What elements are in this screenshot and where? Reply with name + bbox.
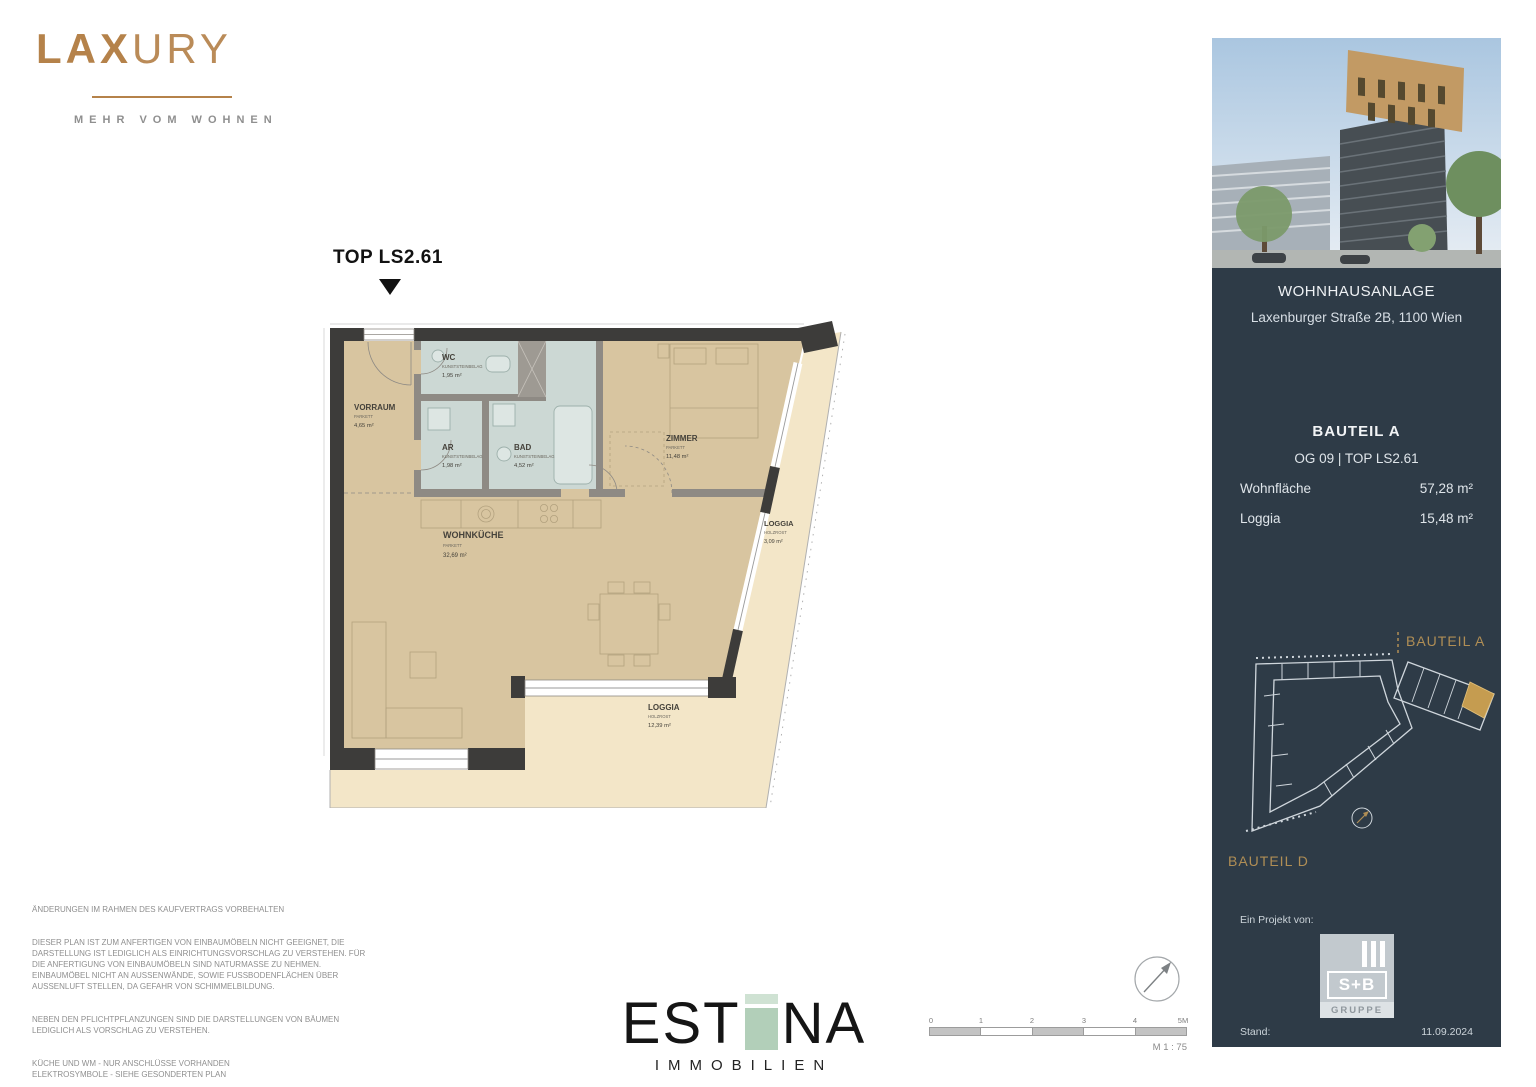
svg-text:11,48 m²: 11,48 m²	[666, 454, 689, 460]
window-south	[375, 749, 468, 769]
area-label: Loggia	[1240, 511, 1281, 526]
svg-text:3,09 m²: 3,09 m²	[764, 539, 783, 545]
scale-tick: 3	[1082, 1016, 1086, 1025]
svg-text:PARKETT: PARKETT	[354, 414, 373, 419]
area-row-loggia: Loggia 15,48 m²	[1240, 511, 1473, 526]
sidebar: WOHNHAUSANLAGE Laxenburger Straße 2B, 11…	[1212, 38, 1501, 1047]
sb-logo-gruppe: GRUPPE	[1320, 1002, 1394, 1018]
sb-gruppe-logo: S+B GRUPPE	[1320, 934, 1394, 1018]
project-by-label: Ein Projekt von:	[1240, 914, 1314, 926]
svg-text:PARKETT: PARKETT	[443, 543, 462, 548]
scale-tick: 0	[929, 1016, 933, 1025]
svg-text:ZIMMER: ZIMMER	[666, 434, 698, 443]
scale-bar-segments	[929, 1027, 1187, 1036]
estina-word-right: NA	[782, 997, 867, 1050]
estina-word-left: EST	[622, 997, 741, 1050]
highlighted-unit	[1462, 682, 1494, 718]
laxury-wordmark-bold: LAX	[36, 25, 132, 72]
svg-text:KUNSTSTEINBELAG: KUNSTSTEINBELAG	[442, 454, 483, 459]
entrance	[364, 329, 414, 340]
svg-text:4,65 m²: 4,65 m²	[354, 423, 374, 429]
estina-wordmark: EST NA	[606, 994, 882, 1050]
disclaimer-p1: ÄNDERUNGEN IM RAHMEN DES KAUFVERTRAGS VO…	[32, 904, 502, 915]
disclaimer-p4: KÜCHE UND WM - NUR ANSCHLÜSSE VORHANDEN …	[32, 1058, 502, 1080]
laxury-wordmark: LAXURY	[36, 28, 296, 70]
site-plan: BAUTEIL A BAUTEIL D	[1212, 606, 1501, 896]
unit-pointer-icon	[379, 279, 401, 295]
scale-tick: 1	[979, 1016, 983, 1025]
scale-tick: 2	[1030, 1016, 1034, 1025]
svg-text:HOLZROST: HOLZROST	[648, 714, 671, 719]
bauteil-heading: BAUTEIL A	[1212, 423, 1501, 440]
svg-text:WC: WC	[442, 353, 456, 362]
logo-divider	[92, 96, 232, 98]
estina-i-icon	[745, 994, 778, 1050]
svg-text:HOLZROST: HOLZROST	[764, 530, 787, 535]
siteplan-compass-icon	[1352, 808, 1372, 828]
svg-text:PARKETT: PARKETT	[666, 445, 685, 450]
unit-line: OG 09 | TOP LS2.61	[1212, 451, 1501, 466]
area-label: Wohnfläche	[1240, 481, 1311, 496]
logo-tagline: MEHR VOM WOHNEN	[74, 114, 278, 126]
siteplan-label-a: BAUTEIL A	[1406, 633, 1485, 649]
brochure-page: LAXURY MEHR VOM WOHNEN TOP LS2.61	[0, 0, 1536, 1087]
svg-text:KUNSTSTEINBELAG: KUNSTSTEINBELAG	[514, 454, 555, 459]
area-row-wohnflaeche: Wohnfläche 57,28 m²	[1240, 481, 1473, 496]
scale-ratio: M 1 : 75	[1153, 1042, 1187, 1053]
svg-text:32,69 m²: 32,69 m²	[443, 553, 467, 559]
unit-title: TOP LS2.61	[333, 247, 443, 269]
svg-text:LOGGIA: LOGGIA	[648, 703, 680, 712]
svg-text:VORRAUM: VORRAUM	[354, 403, 396, 412]
svg-text:4,52 m²: 4,52 m²	[514, 463, 534, 469]
sb-logo-name: S+B	[1327, 971, 1387, 999]
estina-subtitle: IMMOBILIEN	[606, 1057, 882, 1074]
scale-tick: 5M	[1178, 1016, 1188, 1025]
svg-text:WOHNKÜCHE: WOHNKÜCHE	[443, 530, 504, 540]
svg-text:LOGGIA: LOGGIA	[764, 519, 794, 528]
north-arrow-icon	[1126, 948, 1188, 1010]
stand-row: Stand: 11.09.2024	[1240, 1026, 1473, 1038]
svg-text:KUNSTSTEINBELAG: KUNSTSTEINBELAG	[442, 364, 483, 369]
siteplan-label-d: BAUTEIL D	[1228, 853, 1309, 869]
laxury-logo: LAXURY MEHR VOM WOHNEN	[36, 28, 296, 70]
stand-date: 11.09.2024	[1421, 1026, 1473, 1038]
svg-text:12,39 m²: 12,39 m²	[648, 723, 671, 729]
shaft	[518, 341, 546, 397]
area-value: 15,48 m²	[1420, 511, 1473, 526]
svg-text:1,98 m²: 1,98 m²	[442, 463, 462, 469]
glass-wall-south	[525, 677, 736, 698]
svg-text:AR: AR	[442, 443, 454, 452]
laxury-wordmark-light: URY	[132, 25, 232, 72]
sb-logo-bars-icon	[1362, 941, 1385, 967]
disclaimer: ÄNDERUNGEN IM RAHMEN DES KAUFVERTRAGS VO…	[32, 893, 502, 1087]
building-photo	[1212, 38, 1501, 268]
floor-plan: VORRAUM PARKETT 4,65 m² WC KUNSTSTEINBEL…	[318, 308, 878, 808]
project-address: Laxenburger Straße 2B, 1100 Wien	[1212, 310, 1501, 325]
disclaimer-p2: DIESER PLAN IST ZUM ANFERTIGEN VON EINBA…	[32, 937, 502, 992]
scale-bar: 0 1 2 3 4 5M M 1 : 75	[929, 1016, 1187, 1060]
svg-text:1,95 m²: 1,95 m²	[442, 373, 462, 379]
project-title: WOHNHAUSANLAGE	[1212, 283, 1501, 300]
area-value: 57,28 m²	[1420, 481, 1473, 496]
disclaimer-p3: NEBEN DEN PFLICHTPFLANZUNGEN SIND DIE DA…	[32, 1014, 502, 1036]
estina-logo: EST NA IMMOBILIEN	[606, 994, 882, 1074]
stand-label: Stand:	[1240, 1026, 1270, 1038]
scale-tick: 4	[1133, 1016, 1137, 1025]
svg-text:BAD: BAD	[514, 443, 532, 452]
